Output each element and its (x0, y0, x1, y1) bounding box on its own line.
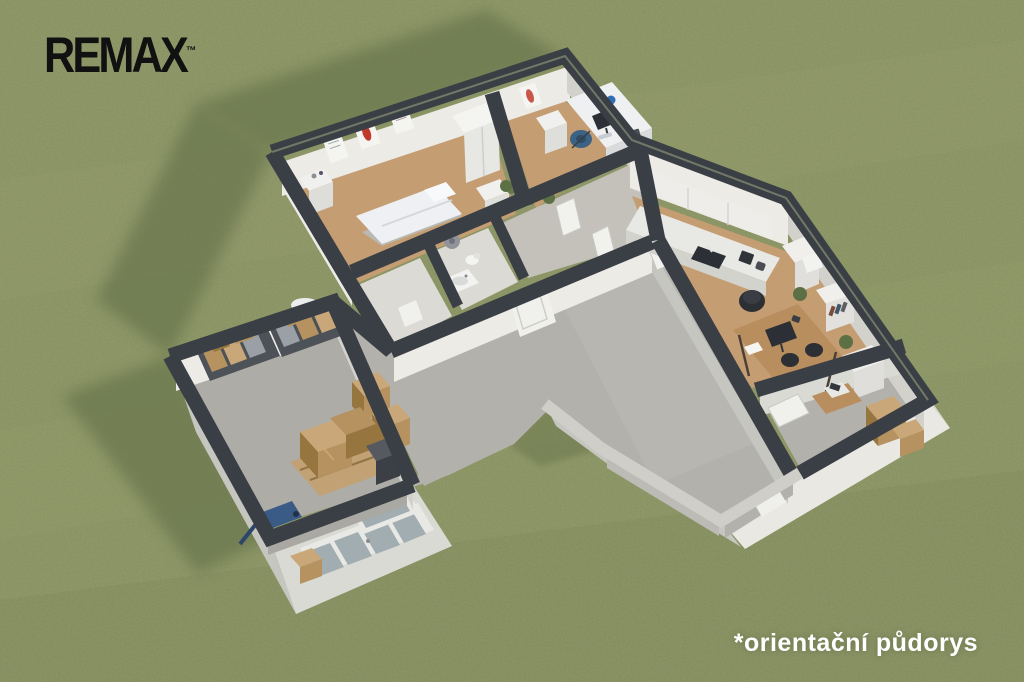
floorplan-render: REMAX™ *orientační půdorys (0, 0, 1024, 682)
floorplan-caption: *orientační půdorys (734, 629, 978, 658)
kitchen-plant-2 (839, 335, 853, 349)
desk-chair (739, 290, 765, 312)
kitchen-plant-1 (793, 287, 807, 301)
remax-logo: REMAX™ (44, 30, 196, 80)
office-chair (570, 130, 592, 148)
remax-logo-text: REMAX (44, 27, 186, 83)
floorplan-3d-svg (0, 0, 1024, 682)
trademark-symbol: ™ (186, 45, 196, 58)
